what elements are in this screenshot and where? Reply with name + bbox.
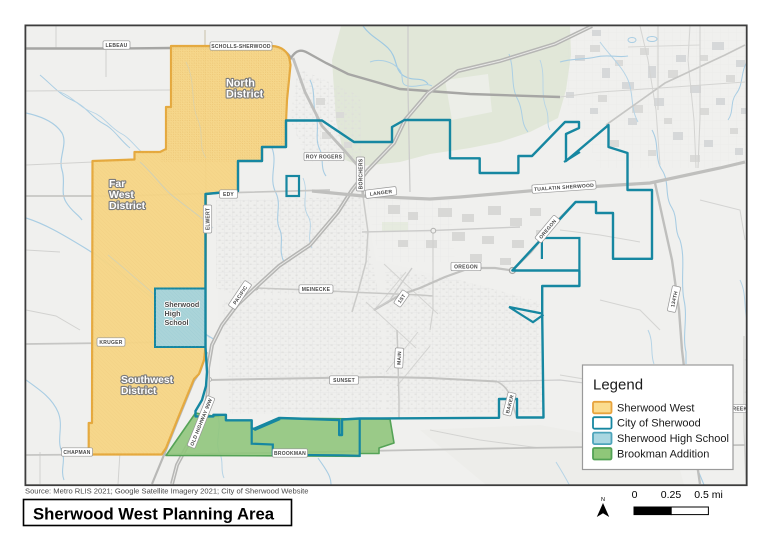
svg-text:Brookman Addition: Brookman Addition (617, 449, 709, 461)
svg-text:Source: Metro RLIS 2021; Googl: Source: Metro RLIS 2021; Google Satellit… (25, 487, 309, 496)
svg-text:Sherwood High School: Sherwood High School (617, 433, 729, 445)
svg-text:SUNSET: SUNSET (333, 378, 355, 384)
svg-text:District: District (226, 89, 264, 101)
svg-text:MAIN: MAIN (397, 351, 404, 365)
svg-text:Southwest: Southwest (121, 375, 174, 386)
svg-text:0.25: 0.25 (661, 489, 682, 501)
svg-text:BORCHERS: BORCHERS (358, 158, 364, 189)
svg-text:Sherwood West: Sherwood West (617, 402, 694, 414)
svg-text:District: District (121, 386, 157, 397)
svg-text:BROOKMAN: BROOKMAN (274, 451, 306, 457)
svg-text:Legend: Legend (593, 377, 643, 394)
svg-text:N: N (601, 497, 605, 503)
svg-text:CHAPMAN: CHAPMAN (63, 450, 90, 456)
svg-text:MEINECKE: MEINECKE (302, 287, 331, 293)
svg-text:Sherwood West Planning Area: Sherwood West Planning Area (33, 505, 275, 524)
svg-text:City of Sherwood: City of Sherwood (617, 418, 701, 430)
svg-text:School: School (165, 318, 189, 327)
svg-text:SCHOLLS-SHERWOOD: SCHOLLS-SHERWOOD (211, 44, 271, 50)
svg-text:High: High (165, 309, 181, 318)
svg-text:0: 0 (632, 489, 638, 501)
svg-text:LEBEAU: LEBEAU (105, 43, 127, 49)
svg-text:ELWERT: ELWERT (205, 208, 211, 230)
svg-text:OREGON: OREGON (454, 264, 478, 270)
svg-text:KRUGER: KRUGER (99, 340, 122, 346)
svg-text:District: District (109, 200, 146, 212)
svg-text:Sherwood: Sherwood (165, 300, 200, 309)
svg-text:EDY: EDY (223, 192, 234, 198)
svg-text:ROY ROGERS: ROY ROGERS (306, 154, 343, 160)
svg-text:0.5 mi: 0.5 mi (694, 489, 723, 501)
